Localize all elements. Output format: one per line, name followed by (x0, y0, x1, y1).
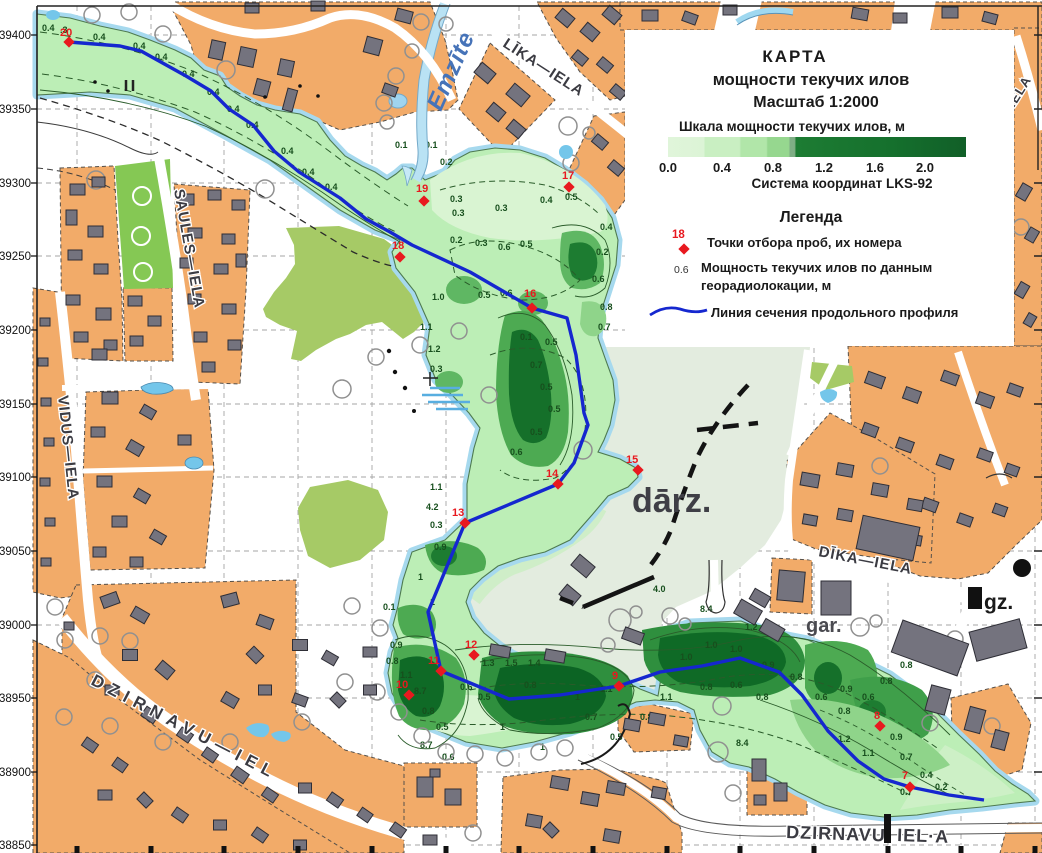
svg-text:0.9: 0.9 (840, 684, 853, 694)
svg-text:Линия сечения продольного проф: Линия сечения продольного профиля (711, 305, 958, 320)
svg-text:1.3: 1.3 (482, 658, 495, 668)
svg-text:Точки отбора проб, их номера: Точки отбора проб, их номера (707, 235, 902, 250)
svg-text:0.8: 0.8 (764, 160, 782, 175)
svg-text:18: 18 (392, 240, 404, 252)
svg-text:39250: 39250 (0, 251, 31, 263)
svg-text:18: 18 (672, 229, 685, 241)
svg-text:0.5: 0.5 (545, 337, 558, 347)
svg-text:8.4: 8.4 (700, 604, 713, 614)
svg-text:0.8: 0.8 (386, 656, 399, 666)
svg-text:14: 14 (546, 468, 559, 480)
svg-text:1.0: 1.0 (432, 292, 445, 302)
svg-text:0.4: 0.4 (600, 222, 613, 232)
svg-text:16: 16 (524, 288, 536, 300)
svg-text:0.3: 0.3 (495, 203, 508, 213)
svg-text:1.1: 1.1 (430, 482, 443, 492)
svg-text:12: 12 (465, 639, 477, 651)
svg-text:0.1: 0.1 (520, 332, 533, 342)
svg-text:15: 15 (626, 454, 638, 466)
svg-text:39050: 39050 (0, 546, 31, 558)
svg-text:0.3: 0.3 (430, 520, 443, 530)
svg-text:8.7: 8.7 (420, 740, 433, 750)
svg-text:39350: 39350 (0, 104, 31, 116)
svg-text:0.2: 0.2 (596, 247, 609, 257)
svg-text:0.8: 0.8 (838, 706, 851, 716)
svg-text:1.1: 1.1 (862, 748, 875, 758)
svg-text:0.4: 0.4 (920, 770, 933, 780)
svg-text:0.9: 0.9 (890, 732, 903, 742)
svg-text:1.5: 1.5 (505, 658, 518, 668)
svg-text:0.8: 0.8 (880, 676, 893, 686)
svg-text:39150: 39150 (0, 399, 31, 411)
svg-text:0.0: 0.0 (659, 160, 677, 175)
svg-text:1.1: 1.1 (420, 322, 433, 332)
svg-text:Система координат LKS-92: Система координат LKS-92 (752, 176, 933, 191)
svg-text:0.5: 0.5 (530, 427, 543, 437)
svg-text:0.8: 0.8 (756, 692, 769, 702)
svg-text:11: 11 (428, 655, 440, 667)
svg-text:Шкала мощности текучих илов,: Шкала мощности текучих илов, м (679, 119, 905, 134)
svg-text:20: 20 (60, 27, 72, 39)
svg-text:1.4: 1.4 (528, 658, 541, 668)
svg-text:4.2: 4.2 (426, 502, 439, 512)
svg-text:0.2: 0.2 (440, 157, 453, 167)
svg-text:0.6: 0.6 (815, 692, 828, 702)
svg-text:0.9: 0.9 (434, 542, 447, 552)
svg-text:7: 7 (902, 770, 908, 782)
svg-text:gz.: gz. (984, 591, 1013, 614)
svg-text:0.5: 0.5 (548, 404, 561, 414)
svg-text:0.3: 0.3 (452, 208, 465, 218)
svg-text:2.0: 2.0 (916, 160, 934, 175)
svg-text:0.7: 0.7 (530, 360, 543, 370)
svg-text:IEL·A: IEL·A (897, 825, 950, 847)
svg-text:1.0: 1.0 (730, 644, 743, 654)
svg-text:0.2: 0.2 (935, 782, 948, 792)
svg-text:0.6: 0.6 (592, 274, 605, 284)
svg-text:1.0: 1.0 (705, 640, 718, 650)
svg-text:0.1: 0.1 (383, 602, 396, 612)
svg-text:39100: 39100 (0, 472, 31, 484)
svg-text:1.0: 1.0 (680, 652, 693, 662)
svg-text:0.3: 0.3 (475, 238, 488, 248)
svg-text:0.7: 0.7 (900, 752, 913, 762)
svg-text:мощности текучих илов: мощности текучих илов (713, 71, 910, 89)
svg-text:8: 8 (874, 710, 880, 722)
svg-text:39400: 39400 (0, 30, 31, 42)
svg-text:0.5: 0.5 (540, 382, 553, 392)
svg-text:DZIRNAVU: DZIRNAVU (786, 822, 886, 845)
svg-text:17: 17 (562, 170, 574, 182)
svg-text:0.7: 0.7 (598, 322, 611, 332)
svg-text:38850: 38850 (0, 840, 31, 852)
svg-text:0.6: 0.6 (862, 692, 875, 702)
svg-text:1: 1 (500, 722, 505, 732)
svg-text:0.5: 0.5 (565, 192, 578, 202)
svg-text:Мощность текучих илов по данны: Мощность текучих илов по данным (701, 260, 932, 275)
svg-text:38950: 38950 (0, 693, 31, 705)
svg-text:0.9: 0.9 (390, 640, 403, 650)
svg-text:13: 13 (452, 507, 464, 519)
svg-text:39000: 39000 (0, 620, 31, 632)
svg-text:9: 9 (612, 670, 618, 682)
svg-text:0.4: 0.4 (540, 195, 553, 205)
svg-text:0.8: 0.8 (600, 302, 613, 312)
svg-text:0.7: 0.7 (585, 712, 598, 722)
svg-text:0.6: 0.6 (674, 264, 689, 276)
svg-text:0.3: 0.3 (430, 364, 443, 374)
svg-text:8.7: 8.7 (414, 686, 427, 696)
svg-text:0.8: 0.8 (524, 680, 537, 690)
svg-text:0.5: 0.5 (520, 239, 533, 249)
svg-text:0.3: 0.3 (450, 194, 463, 204)
svg-text:0.8: 0.8 (422, 706, 435, 716)
svg-text:Легенда: Легенда (780, 209, 843, 226)
svg-text:Масштаб 1:2000: Масштаб 1:2000 (753, 94, 879, 111)
svg-text:георадиолокации, м: георадиолокации, м (701, 278, 831, 293)
svg-text:0.8: 0.8 (900, 660, 913, 670)
svg-text:0.8: 0.8 (700, 682, 713, 692)
svg-text:1.6: 1.6 (866, 160, 884, 175)
svg-text:1.2: 1.2 (428, 344, 441, 354)
svg-text:39300: 39300 (0, 178, 31, 190)
svg-text:0.1: 0.1 (395, 140, 408, 150)
svg-text:0.4: 0.4 (93, 32, 106, 42)
svg-text:0.4: 0.4 (713, 160, 732, 175)
svg-text:0.5: 0.5 (478, 692, 491, 702)
svg-text:1.2: 1.2 (815, 160, 833, 175)
svg-text:0.4: 0.4 (281, 146, 294, 156)
svg-text:0.6: 0.6 (510, 447, 523, 457)
svg-text:gar.: gar. (806, 615, 842, 637)
svg-text:0.5: 0.5 (436, 722, 449, 732)
svg-text:0.4: 0.4 (42, 23, 55, 33)
svg-text:10: 10 (396, 679, 408, 691)
svg-text:1: 1 (418, 572, 423, 582)
svg-text:0.2: 0.2 (450, 235, 463, 245)
svg-text:0.6: 0.6 (498, 242, 511, 252)
svg-text:0.5: 0.5 (478, 290, 491, 300)
svg-text:19: 19 (416, 183, 428, 195)
svg-text:39200: 39200 (0, 325, 31, 337)
svg-text:38900: 38900 (0, 767, 31, 779)
svg-text:1.1: 1.1 (660, 692, 673, 702)
svg-text:0.6: 0.6 (730, 680, 743, 690)
svg-text:КАРТА: КАРТА (762, 47, 827, 66)
svg-text:8.4: 8.4 (736, 738, 749, 748)
svg-text:dārz.: dārz. (632, 482, 711, 520)
svg-text:4.0: 4.0 (653, 584, 666, 594)
svg-text:0.8: 0.8 (790, 672, 803, 682)
